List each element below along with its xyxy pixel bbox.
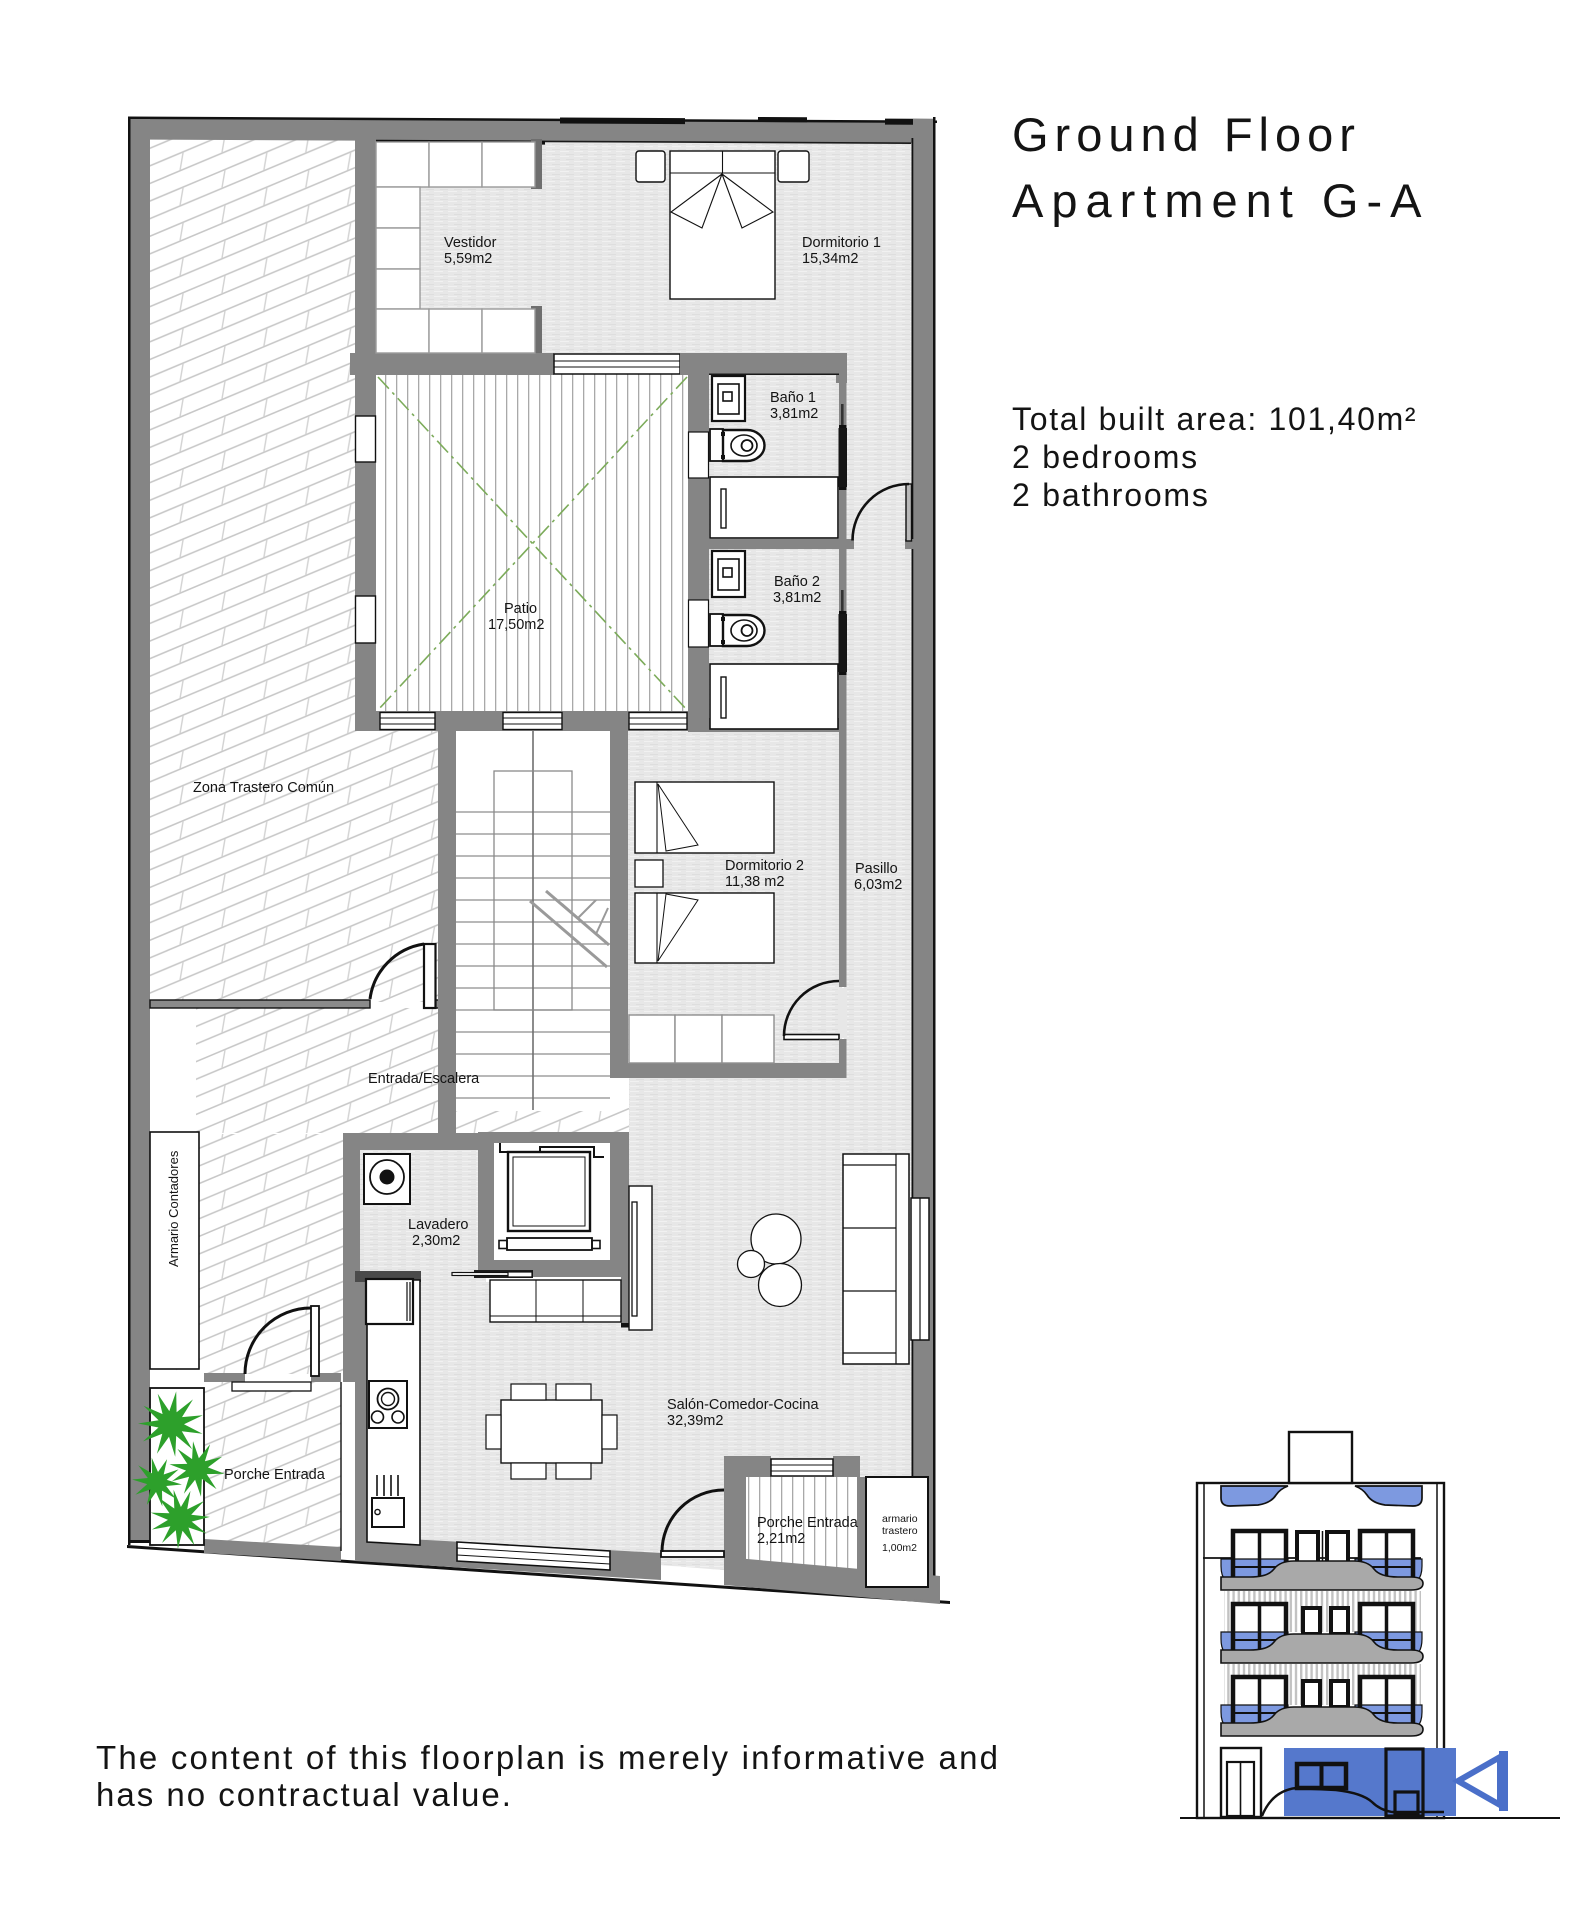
svg-text:Dormitorio 2: Dormitorio 2 bbox=[725, 858, 804, 874]
svg-text:11,38 m2: 11,38 m2 bbox=[725, 874, 784, 890]
svg-text:trastero: trastero bbox=[882, 1525, 918, 1537]
svg-text:3,81m2: 3,81m2 bbox=[773, 590, 821, 606]
svg-text:has no contractual value.: has no contractual value. bbox=[96, 1776, 513, 1813]
svg-text:Armario Contadores: Armario Contadores bbox=[166, 1150, 181, 1267]
svg-text:Porche Entrada: Porche Entrada bbox=[224, 1467, 326, 1483]
svg-text:32,39m2: 32,39m2 bbox=[667, 1413, 723, 1429]
svg-text:6,03m2: 6,03m2 bbox=[854, 877, 902, 893]
svg-text:Entrada/Escalera: Entrada/Escalera bbox=[368, 1071, 480, 1087]
svg-text:Ground Floor: Ground Floor bbox=[1012, 108, 1361, 161]
svg-text:Lavadero: Lavadero bbox=[408, 1217, 468, 1233]
svg-text:Porche Entrada: Porche Entrada bbox=[757, 1515, 859, 1531]
svg-text:2,30m2: 2,30m2 bbox=[412, 1233, 460, 1249]
svg-text:15,34m2: 15,34m2 bbox=[802, 251, 858, 267]
svg-text:armario: armario bbox=[882, 1513, 918, 1525]
svg-text:Salón-Comedor-Cocina: Salón-Comedor-Cocina bbox=[667, 1397, 819, 1413]
svg-text:3,81m2: 3,81m2 bbox=[770, 406, 818, 422]
svg-text:The content of this floorplan: The content of this floorplan is merely … bbox=[96, 1739, 1000, 1776]
svg-text:Dormitorio 1: Dormitorio 1 bbox=[802, 235, 881, 251]
svg-text:Total built area: 101,40m²: Total built area: 101,40m² bbox=[1012, 401, 1417, 437]
svg-text:5,59m2: 5,59m2 bbox=[444, 251, 492, 267]
svg-text:Zona Trastero Común: Zona Trastero Común bbox=[193, 780, 334, 796]
svg-text:17,50m2: 17,50m2 bbox=[488, 617, 544, 633]
svg-text:Vestidor: Vestidor bbox=[444, 235, 497, 251]
svg-text:2 bedrooms: 2 bedrooms bbox=[1012, 439, 1199, 475]
svg-text:Baño 1: Baño 1 bbox=[770, 390, 816, 406]
svg-text:Pasillo: Pasillo bbox=[855, 861, 898, 877]
svg-text:Apartment G-A: Apartment G-A bbox=[1012, 174, 1429, 227]
svg-text:Baño 2: Baño 2 bbox=[774, 574, 820, 590]
svg-text:1,00m2: 1,00m2 bbox=[882, 1542, 917, 1554]
svg-text:Patio: Patio bbox=[504, 601, 537, 617]
svg-text:2 bathrooms: 2 bathrooms bbox=[1012, 477, 1210, 513]
svg-text:2,21m2: 2,21m2 bbox=[757, 1531, 805, 1547]
